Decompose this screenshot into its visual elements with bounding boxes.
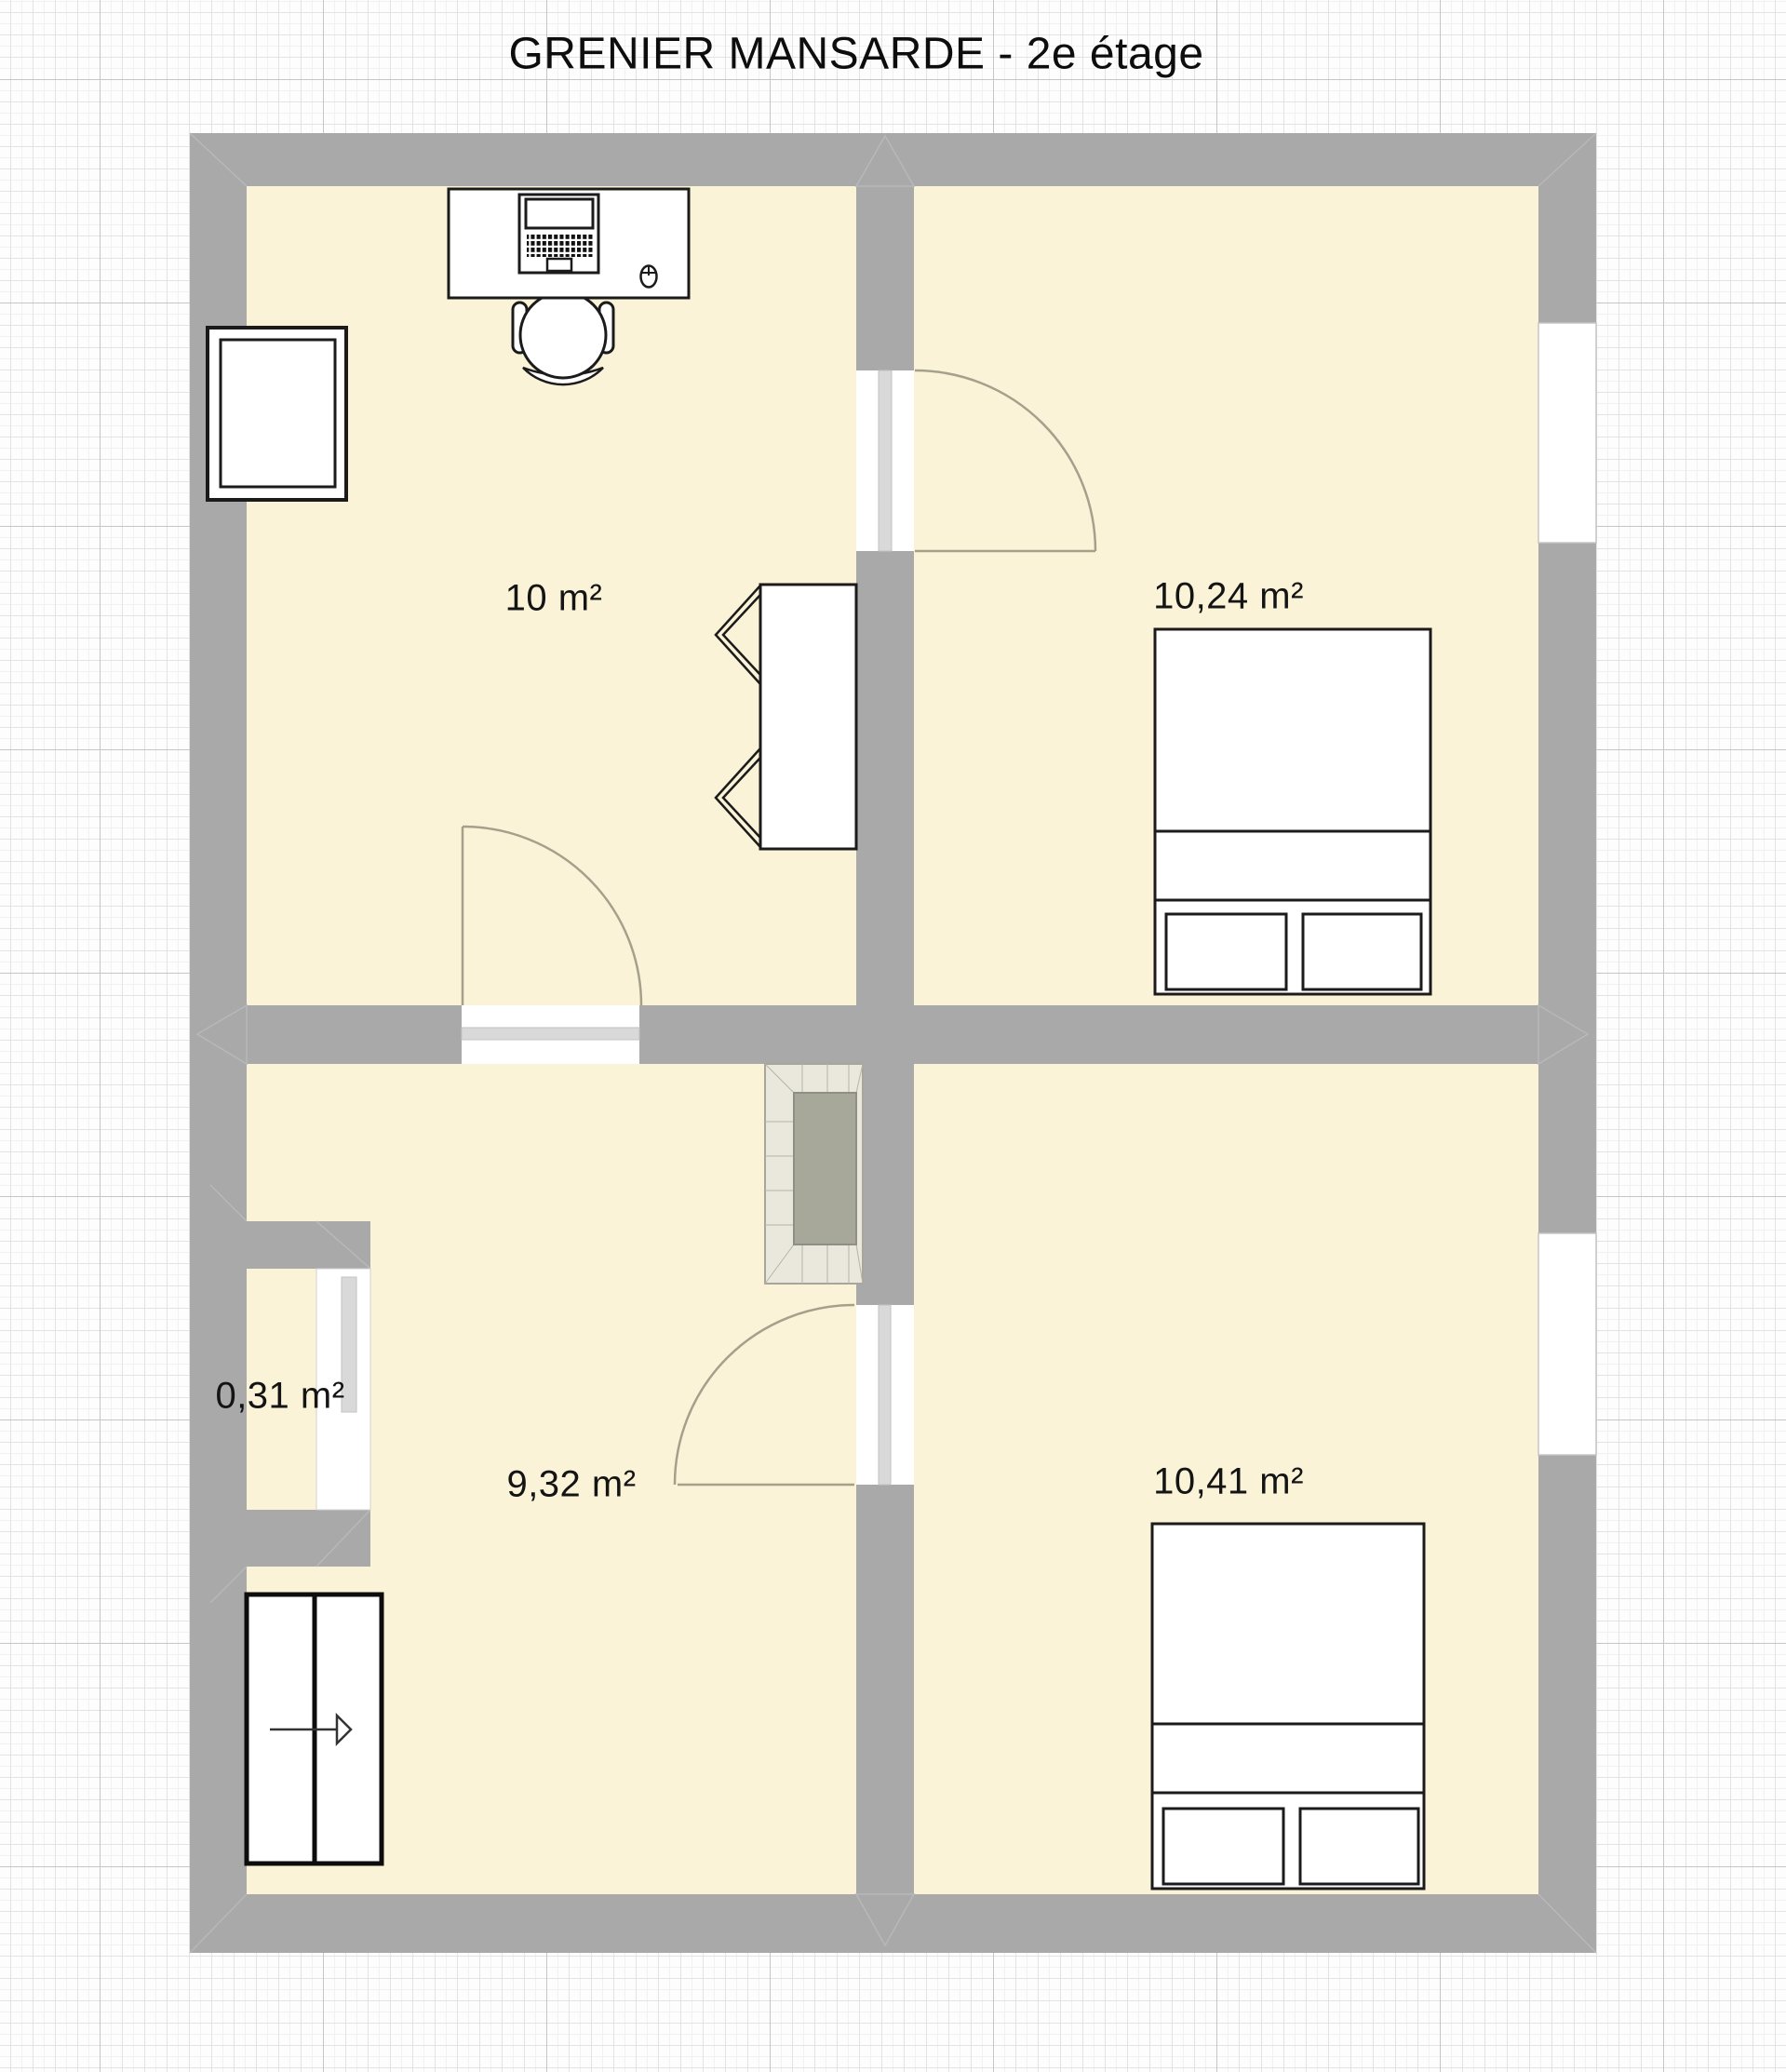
page-title: GRENIER MANSARDE - 2e étage (508, 29, 1203, 80)
double-bed-bottom (1152, 1524, 1424, 1889)
wall-closet-top-stub (247, 1221, 370, 1269)
floorplan-drawing (0, 0, 1786, 2072)
window-right-top (1538, 323, 1596, 543)
pillow (1163, 1809, 1283, 1884)
desk (449, 189, 689, 298)
room-area-label-closet: 0,31 m² (215, 1376, 344, 1418)
wall-mid-horizontal (247, 1005, 1538, 1064)
wall-mid-vertical-top (856, 186, 914, 1005)
laptop-keyboard (527, 233, 593, 257)
double-bed-top (1155, 629, 1430, 994)
mouse-icon (641, 266, 657, 288)
stairs-hatch (247, 1594, 382, 1863)
pillow (1303, 914, 1421, 989)
pillow (1300, 1809, 1418, 1884)
laptop (519, 195, 598, 273)
window-right-bottom (1538, 1233, 1596, 1455)
wall-closet-bottom-stub (247, 1510, 370, 1567)
room-area-label-bottom-right: 10,41 m² (1153, 1461, 1304, 1503)
room-area-label-bottom-left: 9,32 m² (506, 1464, 636, 1506)
roof-window (208, 328, 346, 500)
chimney (765, 1064, 863, 1284)
room-area-label-top-right: 10,24 m² (1153, 576, 1304, 618)
pillow (1166, 914, 1286, 989)
laptop-screen (526, 199, 593, 228)
laptop-touchpad (547, 259, 571, 271)
floorplan-canvas: GRENIER MANSARDE - 2e étage 10 m² 10,24 … (0, 0, 1786, 2072)
chair-seat (520, 292, 606, 378)
room-area-label-top-left: 10 m² (505, 578, 603, 620)
chimney-flue (794, 1093, 856, 1245)
